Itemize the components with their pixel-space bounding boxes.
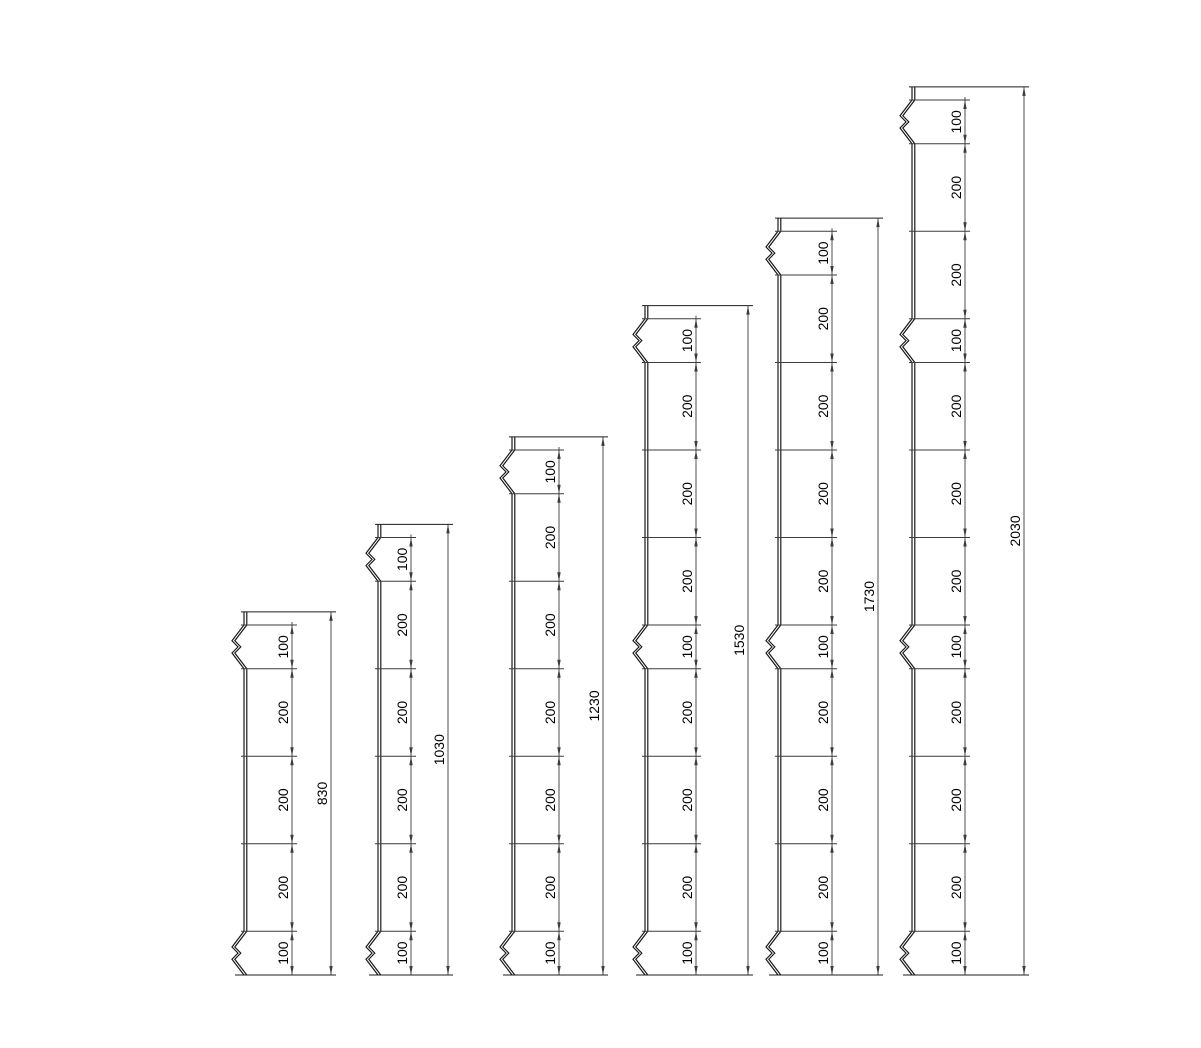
dimension-arrow — [830, 529, 833, 538]
dimension-arrow — [290, 660, 293, 669]
segment-dimension-label: 200 — [679, 788, 695, 812]
dimension-arrow — [963, 529, 966, 538]
dimension-arrow — [963, 441, 966, 450]
dimension-arrow — [963, 660, 966, 669]
dimension-arrow — [830, 363, 833, 372]
post-profile-inner-line — [503, 437, 515, 975]
segment-dimension-label: 200 — [815, 569, 831, 593]
dimension-arrow — [830, 231, 833, 240]
dimension-arrow — [290, 966, 293, 975]
segment-dimension-label: 200 — [679, 482, 695, 506]
dimension-arrow — [409, 669, 412, 678]
segment-dimension-label: 200 — [948, 176, 964, 200]
dimension-arrow — [409, 581, 412, 590]
segment-dimension-label: 200 — [948, 788, 964, 812]
segment-dimension-label: 100 — [815, 241, 831, 265]
segment-dimension-label: 200 — [948, 569, 964, 593]
dimension-arrow — [694, 538, 697, 547]
post-profile-inner-line — [369, 524, 381, 975]
dimension-arrow — [963, 144, 966, 153]
dimension-arrow — [830, 931, 833, 940]
dimension-arrow — [830, 275, 833, 284]
dimension-arrow — [409, 572, 412, 581]
dimension-arrow — [557, 660, 560, 669]
dimension-arrow — [963, 756, 966, 765]
segment-dimension-label: 100 — [815, 635, 831, 659]
post-profile-inner-line — [903, 87, 915, 975]
dimension-arrow — [290, 756, 293, 765]
overall-dimension-label: 1230 — [586, 690, 602, 721]
dimension-arrow — [830, 835, 833, 844]
dimension-arrow — [557, 966, 560, 975]
segment-dimension-label: 200 — [542, 526, 558, 550]
segment-dimension-label: 200 — [394, 788, 410, 812]
dimension-arrow — [694, 966, 697, 975]
segment-dimension-label: 100 — [394, 941, 410, 965]
overall-dimension-label: 1030 — [431, 734, 447, 765]
dimension-arrow — [329, 612, 332, 621]
dimension-arrow — [557, 922, 560, 931]
dimension-arrow — [830, 450, 833, 459]
dimension-arrow — [557, 494, 560, 503]
dimension-arrow — [409, 966, 412, 975]
dimension-arrow — [694, 931, 697, 940]
overall-dimension-label: 1730 — [861, 581, 877, 612]
dimension-arrow — [694, 756, 697, 765]
dimension-arrow — [963, 669, 966, 678]
post-profile-outer-line — [633, 306, 645, 975]
cad-drawing-canvas: 1002002002001008301002002002002001001030… — [0, 0, 1201, 1048]
dimension-arrow — [830, 616, 833, 625]
dimension-arrow — [876, 218, 879, 227]
dimension-arrow — [830, 266, 833, 275]
dimension-arrow — [557, 756, 560, 765]
segment-dimension-label: 100 — [815, 941, 831, 965]
segment-dimension-label: 200 — [948, 876, 964, 900]
segment-dimension-label: 200 — [815, 394, 831, 418]
post-1030: 1002002002002001001030 — [366, 524, 453, 975]
dimension-arrow — [1022, 87, 1025, 96]
dimension-arrow — [963, 222, 966, 231]
post-1230: 1002002002002002001001230 — [500, 437, 608, 975]
segment-dimension-label: 100 — [679, 635, 695, 659]
post-profile-inner-line — [769, 218, 781, 975]
post-profile-inner-line — [235, 612, 247, 975]
dimension-arrow — [694, 616, 697, 625]
dimension-arrow — [963, 231, 966, 240]
dimension-arrow — [557, 669, 560, 678]
segment-dimension-label: 200 — [542, 701, 558, 725]
dimension-arrow — [830, 844, 833, 853]
dimension-arrow — [694, 319, 697, 328]
dimension-arrow — [557, 450, 560, 459]
post-profile-outer-line — [366, 524, 378, 975]
dimension-arrow — [694, 747, 697, 756]
segment-dimension-label: 200 — [542, 876, 558, 900]
posts-dimension-drawing: 1002002002001008301002002002002001001030… — [0, 0, 1201, 1048]
dimension-arrow — [963, 835, 966, 844]
dimension-arrow — [557, 747, 560, 756]
dimension-arrow — [694, 625, 697, 634]
segment-dimension-label: 200 — [948, 263, 964, 287]
dimension-arrow — [694, 450, 697, 459]
dimension-arrow — [876, 966, 879, 975]
dimension-arrow — [409, 931, 412, 940]
dimension-arrow — [557, 844, 560, 853]
dimension-arrow — [290, 835, 293, 844]
dimension-arrow — [746, 306, 749, 315]
segment-dimension-label: 100 — [542, 941, 558, 965]
dimension-arrow — [557, 485, 560, 494]
overall-dimension-label: 2030 — [1007, 515, 1023, 546]
dimension-arrow — [290, 625, 293, 634]
segment-dimension-label: 200 — [275, 788, 291, 812]
dimension-arrow — [963, 100, 966, 109]
segment-dimension-label: 200 — [948, 482, 964, 506]
segment-dimension-label: 200 — [948, 394, 964, 418]
dimension-arrow — [830, 966, 833, 975]
dimension-arrow — [963, 966, 966, 975]
dimension-arrow — [694, 669, 697, 678]
dimension-arrow — [557, 581, 560, 590]
segment-dimension-label: 200 — [275, 701, 291, 725]
dimension-arrow — [557, 835, 560, 844]
segment-dimension-label: 200 — [394, 613, 410, 637]
segment-dimension-label: 100 — [948, 941, 964, 965]
dimension-arrow — [694, 835, 697, 844]
dimension-arrow — [694, 529, 697, 538]
dimension-arrow — [830, 669, 833, 678]
overall-dimension-label: 1530 — [731, 625, 747, 656]
dimension-arrow — [963, 931, 966, 940]
post-2030: 1002002001002002002001002002002001002030 — [900, 87, 1029, 975]
dimension-arrow — [830, 756, 833, 765]
segment-dimension-label: 200 — [815, 482, 831, 506]
dimension-arrow — [409, 660, 412, 669]
segment-dimension-label: 200 — [679, 701, 695, 725]
dimension-arrow — [830, 538, 833, 547]
dimension-arrow — [409, 835, 412, 844]
post-1530: 1002002002001002002002001001530 — [633, 306, 753, 975]
dimension-arrow — [830, 660, 833, 669]
segment-dimension-label: 200 — [679, 876, 695, 900]
dimension-arrow — [694, 922, 697, 931]
segment-dimension-label: 100 — [394, 547, 410, 571]
segment-dimension-label: 100 — [948, 110, 964, 134]
dimension-arrow — [830, 354, 833, 363]
segment-dimension-label: 100 — [948, 635, 964, 659]
dimension-arrow — [694, 441, 697, 450]
segment-dimension-label: 200 — [815, 876, 831, 900]
dimension-arrow — [963, 922, 966, 931]
post-profile-inner-line — [636, 306, 648, 975]
segment-dimension-label: 100 — [679, 329, 695, 353]
segment-dimension-label: 100 — [679, 941, 695, 965]
post-profile-outer-line — [900, 87, 912, 975]
dimension-arrow — [601, 437, 604, 446]
dimension-arrow — [290, 669, 293, 678]
segment-dimension-label: 200 — [815, 307, 831, 331]
dimension-arrow — [963, 319, 966, 328]
dimension-arrow — [963, 844, 966, 853]
dimension-arrow — [290, 844, 293, 853]
post-profile-outer-line — [232, 612, 244, 975]
dimension-arrow — [409, 922, 412, 931]
dimension-arrow — [694, 660, 697, 669]
segment-dimension-label: 200 — [948, 701, 964, 725]
segment-dimension-label: 200 — [542, 613, 558, 637]
segment-dimension-label: 200 — [394, 876, 410, 900]
segment-dimension-label: 200 — [815, 788, 831, 812]
dimension-arrow — [830, 441, 833, 450]
post-1730: 1002002002002001002002002001001730 — [766, 218, 883, 975]
dimension-arrow — [557, 931, 560, 940]
segment-dimension-label: 200 — [542, 788, 558, 812]
dimension-arrow — [830, 922, 833, 931]
dimension-arrow — [963, 747, 966, 756]
segment-dimension-label: 100 — [275, 635, 291, 659]
dimension-arrow — [409, 747, 412, 756]
post-profile-outer-line — [500, 437, 512, 975]
dimension-arrow — [830, 747, 833, 756]
dimension-arrow — [963, 625, 966, 634]
dimension-arrow — [963, 310, 966, 319]
post-profile-outer-line — [766, 218, 778, 975]
segment-dimension-label: 200 — [679, 394, 695, 418]
dimension-arrow — [963, 538, 966, 547]
dimension-arrow — [601, 966, 604, 975]
segment-dimension-label: 200 — [275, 876, 291, 900]
segment-dimension-label: 200 — [815, 701, 831, 725]
segment-dimension-label: 200 — [679, 569, 695, 593]
dimension-arrow — [409, 756, 412, 765]
overall-dimension-label: 830 — [314, 782, 330, 806]
dimension-arrow — [409, 844, 412, 853]
dimension-arrow — [963, 354, 966, 363]
dimension-arrow — [963, 135, 966, 144]
dimension-arrow — [409, 538, 412, 547]
dimension-arrow — [830, 625, 833, 634]
segment-dimension-label: 100 — [948, 329, 964, 353]
segment-dimension-label: 100 — [542, 460, 558, 484]
segment-dimension-label: 100 — [275, 941, 291, 965]
dimension-arrow — [694, 363, 697, 372]
dimension-arrow — [446, 966, 449, 975]
dimension-arrow — [290, 922, 293, 931]
dimension-arrow — [963, 450, 966, 459]
dimension-arrow — [290, 931, 293, 940]
dimension-arrow — [963, 363, 966, 372]
dimension-arrow — [557, 572, 560, 581]
segment-dimension-label: 200 — [394, 701, 410, 725]
post-830: 100200200200100830 — [232, 612, 336, 975]
dimension-arrow — [290, 747, 293, 756]
dimension-arrow — [1022, 966, 1025, 975]
dimension-arrow — [694, 354, 697, 363]
dimension-arrow — [446, 524, 449, 533]
dimension-arrow — [746, 966, 749, 975]
dimension-arrow — [329, 966, 332, 975]
dimension-arrow — [694, 844, 697, 853]
dimension-arrow — [963, 616, 966, 625]
